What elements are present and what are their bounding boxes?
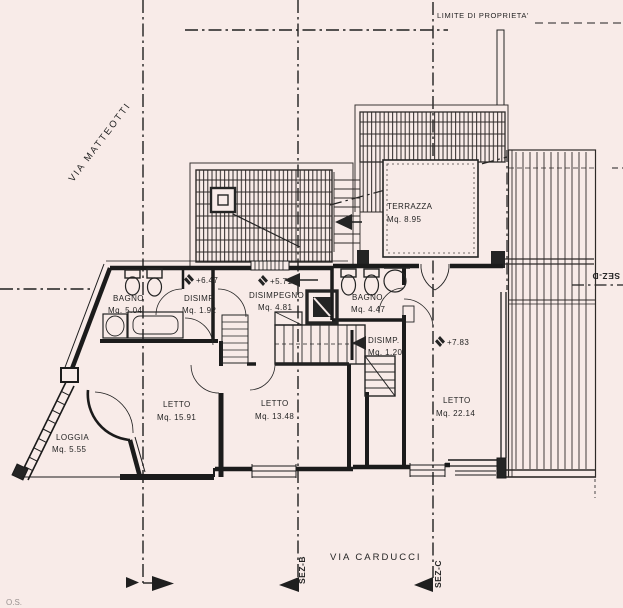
section-c-label: SEZ-C [433, 560, 443, 588]
room-loggia-name: LOGGIA [56, 433, 89, 442]
room-disimpegno-name: DISIMPEGNO [249, 291, 304, 300]
room-disimpegno-area: Mq. 4.81 [258, 303, 292, 312]
room-letto-center-name: LETTO [261, 399, 289, 408]
room-letto-right-area: Mq. 22.14 [436, 409, 475, 418]
room-letto-center-area: Mq. 13.48 [255, 412, 294, 421]
room-letto-left-name: LETTO [163, 400, 191, 409]
floor-plan-sheet: LIMITE DI PROPRIETA' VIA MATTEOTTI VIA C… [0, 0, 623, 608]
street-label-matteotti: VIA MATTEOTTI [67, 100, 134, 184]
room-bagno-left-area: Mq. 5.04 [108, 306, 142, 315]
level-right: +7.83 [447, 338, 469, 347]
terrazza-block [355, 30, 508, 290]
corner-note: O.S. [6, 598, 22, 607]
floor-plan-canvas: LIMITE DI PROPRIETA' VIA MATTEOTTI VIA C… [0, 0, 623, 608]
room-terrazza-area: Mq. 8.95 [387, 215, 421, 224]
level-left: +6.47 [196, 276, 218, 285]
room-disimp-right-area: Mq. 1.20 [368, 348, 402, 357]
section-a-arrow [152, 576, 174, 591]
room-disimp-left-area: Mq. 1.92 [182, 306, 216, 315]
room-letto-right-name: LETTO [443, 396, 471, 405]
room-bagno-left-name: BAGNO [113, 294, 144, 303]
room-terrazza-name: TERRAZZA [387, 202, 433, 211]
stair-pergola [190, 163, 362, 267]
property-limit-label: LIMITE DI PROPRIETA' [437, 11, 529, 20]
room-letto-left-area: Mq. 15.91 [157, 413, 196, 422]
room-bagno-right-name: BAGNO [352, 293, 383, 302]
level-center: +5.71 [270, 277, 292, 286]
section-a-glyph [126, 577, 139, 588]
section-c-arrow [414, 577, 433, 592]
section-d-label: SEZ-D [592, 271, 620, 281]
room-disimp-left-name: DISIMP. [184, 294, 216, 303]
disimp-right-arrow [352, 336, 366, 350]
section-b-arrow [279, 577, 299, 592]
stairs-and-fittings [103, 268, 433, 396]
room-disimp-right-name: DISIMP. [368, 336, 400, 345]
room-loggia-area: Mq. 5.55 [52, 445, 86, 454]
roof-strip-right [505, 150, 596, 477]
room-bagno-right-area: Mq. 4.47 [351, 305, 385, 314]
section-b-label: SEZ-B [297, 556, 307, 584]
street-label-carducci: VIA CARDUCCI [330, 552, 422, 563]
